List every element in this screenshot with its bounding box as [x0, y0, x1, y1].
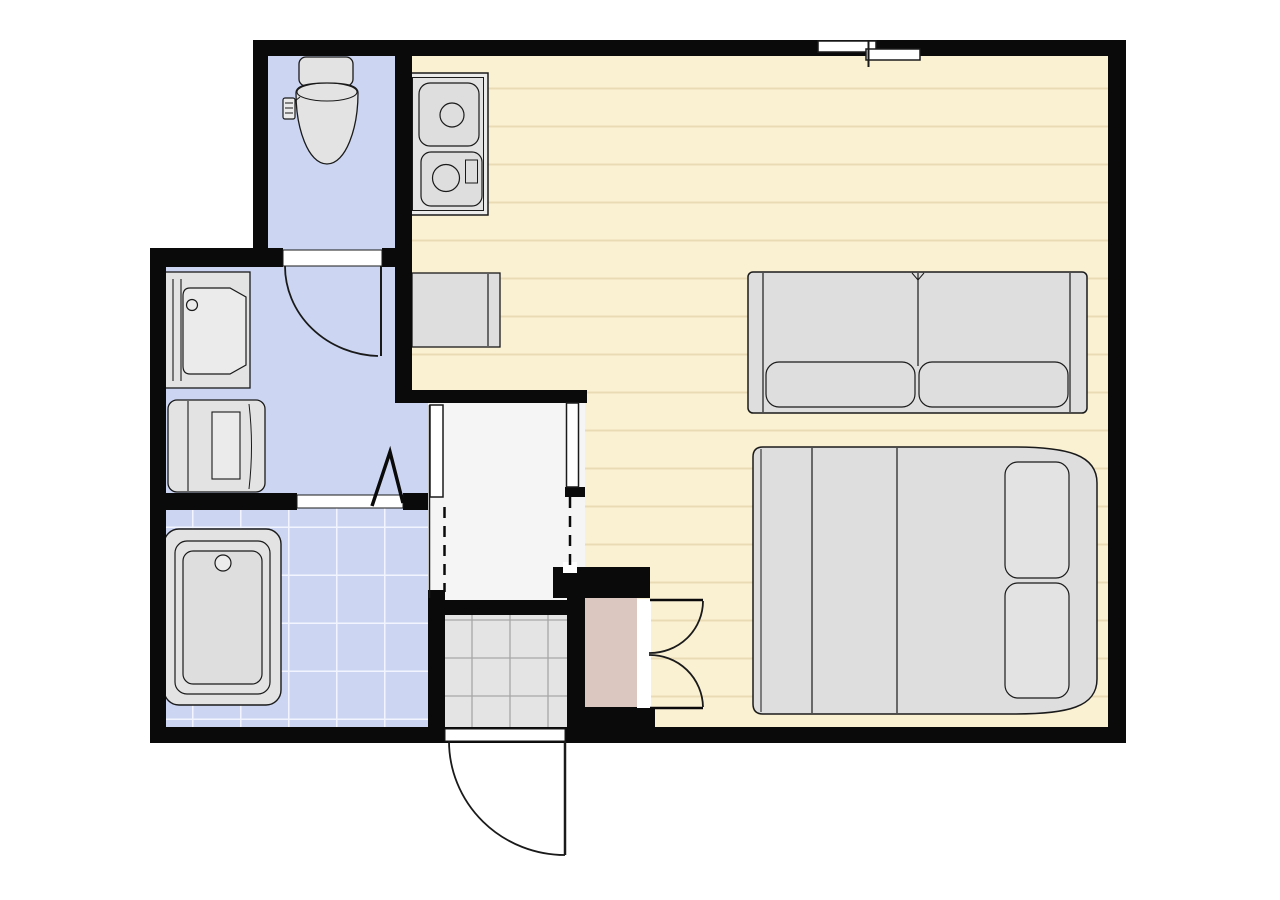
- stove-burner-top: [440, 103, 464, 127]
- threshold-bathroom-door: [297, 495, 403, 508]
- sofa-cushion-left: [766, 362, 915, 407]
- wall-top: [253, 40, 1126, 56]
- bed-pillow-bottom: [1005, 583, 1069, 698]
- wall-mid-vertical: [395, 56, 412, 392]
- wall-right: [1108, 40, 1126, 743]
- wall-bathroom-genkan: [428, 590, 445, 727]
- stove-burner-bottom: [433, 165, 460, 192]
- washing-machine-door: [212, 412, 240, 479]
- closet-floor: [585, 598, 637, 712]
- stove-control-box: [466, 160, 478, 183]
- bathtub-drain: [215, 555, 231, 571]
- threshold-closet-door: [637, 599, 651, 708]
- sliding-door-main-room: [567, 403, 579, 487]
- wall-bottom: [150, 727, 1126, 743]
- vanity-basin: [183, 288, 246, 374]
- washroom-floor-extension: [396, 403, 428, 495]
- entrance-door-swing-arc: [449, 741, 565, 855]
- bed-pillow-top: [1005, 462, 1069, 578]
- sofa-cushion-right: [919, 362, 1068, 407]
- kitchen-counter: [412, 273, 500, 347]
- wall-left: [150, 248, 166, 727]
- window-sash-right: [866, 49, 920, 60]
- wall-closet-bottom: [583, 707, 655, 727]
- wall-washroom-top-left: [150, 248, 283, 267]
- wall-genkan-top: [428, 600, 568, 615]
- wall-bathroom-top-left: [150, 493, 297, 510]
- floor-plan-canvas: [0, 0, 1280, 900]
- wall-hallway-right-stub: [565, 487, 585, 497]
- threshold-toilet-door: [283, 250, 382, 266]
- genkan-tile-grid: [445, 615, 567, 727]
- floor-plan-svg: [0, 0, 1280, 900]
- wall-toilet-left: [253, 40, 268, 267]
- wall-bathroom-top-right: [403, 493, 428, 510]
- threshold-entrance-door: [445, 729, 565, 741]
- toilet-tank: [299, 57, 353, 86]
- wall-hallway-top: [395, 390, 587, 403]
- sliding-door-washroom: [430, 405, 443, 497]
